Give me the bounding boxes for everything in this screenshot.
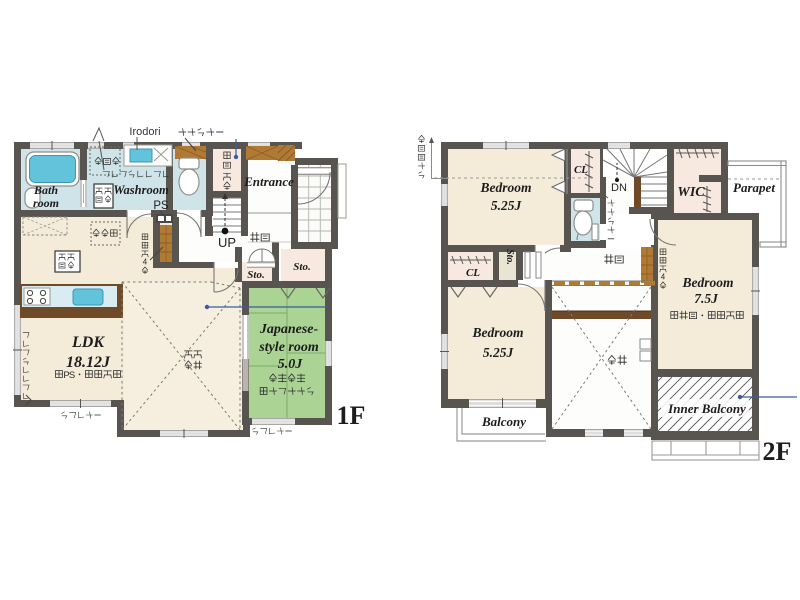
svg-text:Bedroom: Bedroom [479,180,531,195]
svg-text:DN: DN [611,182,627,194]
svg-text:Bath: Bath [33,183,58,197]
svg-text:2F: 2F [763,437,792,466]
svg-text:Bedroom: Bedroom [471,325,523,340]
svg-text:PS: PS [153,200,169,212]
svg-text:7.5J: 7.5J [694,291,719,306]
svg-text:UP: UP [218,235,236,250]
svg-text:Washroom: Washroom [113,183,169,197]
svg-text:WIC: WIC [677,185,705,200]
svg-text:5.0J: 5.0J [278,357,304,372]
svg-text:Japanese-: Japanese- [259,322,319,337]
svg-text:S: S [69,370,75,381]
svg-text:5.25J: 5.25J [491,198,523,213]
svg-text:4: 4 [143,258,148,267]
svg-text:CL: CL [574,164,588,176]
svg-text:CL: CL [466,267,480,279]
svg-text:1F: 1F [337,401,366,430]
svg-text:style room: style room [258,340,319,355]
svg-text:4: 4 [661,273,666,282]
svg-text:Sto.: Sto. [247,269,264,281]
svg-text:LDK: LDK [71,334,105,351]
svg-text:Balcony: Balcony [481,414,526,429]
svg-text:Entrance: Entrance [243,174,294,189]
svg-text:Bedroom: Bedroom [681,275,733,290]
svg-text:Irodori: Irodori [129,126,160,138]
svg-text:Sto.: Sto. [293,261,310,273]
svg-text:Sto.: Sto. [504,249,515,265]
svg-text:Parapet: Parapet [733,180,775,195]
svg-text:Inner Balcony: Inner Balcony [667,401,746,416]
svg-text:5.25J: 5.25J [483,345,515,360]
svg-text:18.12J: 18.12J [66,354,111,371]
svg-text:room: room [33,196,59,210]
